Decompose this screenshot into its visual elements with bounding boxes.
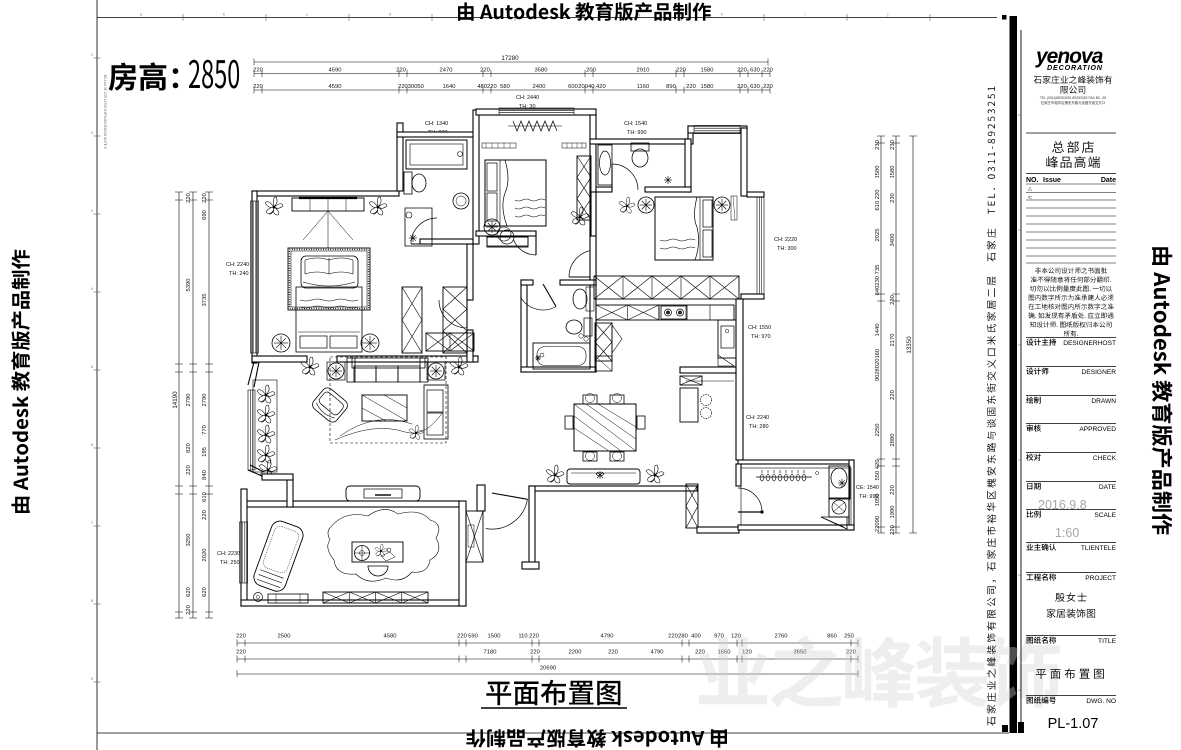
svg-text:PL-1.07: PL-1.07 (1048, 716, 1099, 732)
svg-text:9028020160: 9028020160 (875, 349, 881, 381)
svg-text:220: 220 (763, 68, 773, 74)
svg-text:220: 220 (737, 68, 747, 74)
svg-text:1990: 1990 (890, 506, 896, 519)
svg-text:Issue: Issue (1043, 177, 1061, 184)
svg-text:石家庄市裕华区槐安东路与谈固东街交叉口: 石家庄市裕华区槐安东路与谈固东街交叉口 (1041, 100, 1105, 105)
svg-text:220: 220 (457, 634, 467, 640)
svg-text:840: 840 (202, 470, 208, 480)
svg-text:220: 220 (253, 84, 263, 90)
svg-text:200: 200 (586, 68, 596, 74)
svg-text:3250: 3250 (186, 534, 192, 547)
svg-text:3580: 3580 (535, 68, 548, 74)
svg-text:TH: 970: TH: 970 (751, 334, 771, 340)
svg-text:220: 220 (253, 68, 263, 74)
svg-text:DESIGNER: DESIGNER (1082, 369, 1117, 376)
svg-text:<:: <: (1028, 195, 1032, 201)
svg-text:4590: 4590 (329, 68, 342, 74)
svg-text:2790: 2790 (202, 394, 208, 407)
svg-text:1580: 1580 (701, 68, 714, 74)
svg-text:TH: 250: TH: 250 (220, 560, 240, 566)
svg-text:1580: 1580 (875, 166, 881, 179)
svg-text:220: 220 (890, 525, 896, 535)
svg-text:230: 230 (875, 140, 881, 150)
svg-text:220: 220 (202, 510, 208, 520)
svg-text:2400: 2400 (533, 84, 546, 90)
svg-text:2500: 2500 (278, 634, 291, 640)
svg-text:600: 600 (568, 84, 578, 90)
svg-text:890: 890 (666, 84, 676, 90)
svg-text:230: 230 (890, 140, 896, 150)
svg-text:1440: 1440 (875, 324, 881, 337)
svg-text:TH: 280: TH: 280 (749, 424, 769, 430)
svg-text:195: 195 (202, 447, 208, 457)
svg-text:j: j (887, 12, 889, 17)
svg-text:580: 580 (500, 84, 510, 90)
svg-text:220: 220 (530, 650, 540, 656)
svg-text:630: 630 (750, 84, 760, 90)
svg-text:2760: 2760 (775, 634, 788, 640)
svg-text:220: 220 (236, 634, 246, 640)
svg-text:820: 820 (186, 443, 192, 453)
svg-text:220: 220 (186, 465, 192, 475)
svg-text:DATE: DATE (1099, 484, 1117, 491)
svg-text:2250: 2250 (875, 424, 881, 437)
svg-text:TH: 240: TH: 240 (229, 271, 249, 277)
svg-text:DWG. NO: DWG. NO (1086, 698, 1116, 705)
svg-text:770: 770 (202, 425, 208, 435)
svg-text:TH: 990: TH: 990 (859, 494, 879, 500)
svg-text:400: 400 (691, 634, 701, 640)
svg-text:Date: Date (1101, 177, 1116, 184)
svg-text:TH: 300: TH: 300 (777, 246, 797, 252)
svg-text:4590: 4590 (329, 84, 342, 90)
svg-text:220: 220 (186, 605, 192, 615)
svg-text:3735: 3735 (202, 294, 208, 307)
svg-text:110: 110 (518, 634, 527, 640)
svg-text:2880: 2880 (890, 434, 896, 447)
svg-text:d: d (389, 12, 391, 17)
svg-text:DESIGNERHOST: DESIGNERHOST (1063, 340, 1116, 347)
svg-text:h: h (721, 12, 723, 17)
svg-text:DRAWN: DRAWN (1091, 398, 1116, 405)
svg-text:CH: 1550: CH: 1550 (748, 325, 771, 331)
svg-text:220: 220 (763, 84, 773, 90)
svg-text:i: i (805, 12, 806, 17)
svg-text:220: 220 (236, 650, 246, 656)
svg-text:B2.4 A1 3F-2.05 L2700 GYPSUM C: B2.4 A1 3F-2.05 L2700 GYPSUM CEILING NOT… (103, 75, 107, 150)
svg-text:CHECK: CHECK (1093, 455, 1117, 462)
svg-text:1640: 1640 (443, 84, 456, 90)
svg-text:22090: 22090 (875, 516, 881, 532)
svg-text:20040,420: 20040,420 (578, 84, 605, 90)
svg-text:TEL (0311)89253251 89253252 FA: TEL (0311)89253251 89253252 FAX 89...25 (1040, 96, 1106, 100)
svg-text:610 220: 610 220 (875, 190, 881, 211)
svg-text:1160: 1160 (637, 84, 649, 90)
svg-text:CH: 2240: CH: 2240 (746, 415, 769, 421)
svg-text:840230 735: 840230 735 (875, 265, 881, 296)
svg-text:630: 630 (750, 68, 760, 74)
svg-text:CH: 2440: CH: 2440 (516, 95, 539, 101)
svg-text:CE: 1540: CE: 1540 (856, 485, 879, 491)
svg-text:PROJECT: PROJECT (1085, 575, 1116, 582)
svg-text:280: 280 (678, 634, 688, 640)
svg-text:g: g (638, 12, 640, 17)
svg-text:7180: 7180 (484, 650, 497, 656)
svg-text:220: 220 (890, 485, 896, 495)
svg-text:250: 250 (844, 634, 854, 640)
svg-text:230: 230 (890, 295, 896, 305)
svg-text:DECORATION: DECORATION (1047, 63, 1103, 72)
svg-text:4790: 4790 (601, 634, 614, 640)
svg-text:220: 220 (668, 634, 678, 640)
svg-text:2910: 2910 (637, 68, 650, 74)
svg-text:1:60: 1:60 (1055, 526, 1079, 540)
svg-text:△: △ (1028, 186, 1032, 192)
svg-text:220: 220 (686, 84, 696, 90)
svg-text:3400: 3400 (890, 234, 896, 247)
svg-text:620: 620 (202, 587, 208, 597)
svg-text:CH: 1340: CH: 1340 (425, 121, 448, 127)
svg-text:2016.9.8: 2016.9.8 (1038, 498, 1087, 512)
svg-text:590: 590 (468, 634, 478, 640)
svg-text:5390: 5390 (186, 279, 192, 292)
svg-text:TITLE: TITLE (1098, 638, 1117, 645)
svg-text:APPROVED: APPROVED (1079, 426, 1116, 433)
svg-text:2200: 2200 (569, 650, 582, 656)
svg-text:220: 220 (737, 84, 747, 90)
svg-text:690: 690 (202, 210, 208, 220)
svg-text:220: 220 (396, 68, 406, 74)
svg-text:1580: 1580 (701, 84, 714, 90)
svg-text:2025: 2025 (875, 229, 881, 242)
svg-text:550 420: 550 420 (875, 460, 881, 481)
svg-text:14190: 14190 (172, 391, 179, 409)
svg-text:230: 230 (890, 193, 896, 203)
svg-text:610: 610 (202, 492, 208, 502)
svg-text:TH: 990: TH: 990 (627, 130, 647, 136)
svg-text:860: 860 (827, 634, 837, 640)
svg-text:2020: 2020 (202, 549, 208, 562)
svg-text:220: 220 (480, 68, 490, 74)
svg-text:CH: 2220: CH: 2220 (774, 237, 797, 243)
svg-text:1580: 1580 (890, 166, 896, 179)
svg-text:CH: 1540: CH: 1540 (624, 121, 647, 127)
svg-text:220: 220 (676, 68, 686, 74)
svg-text:17280: 17280 (501, 55, 519, 62)
svg-text:220: 220 (202, 193, 208, 203)
svg-text:220: 220 (186, 193, 192, 203)
svg-text:TLIENTELE: TLIENTELE (1081, 545, 1117, 552)
svg-text:4790: 4790 (651, 650, 664, 656)
svg-text:CH: 2240: CH: 2240 (226, 262, 249, 268)
svg-text:4580: 4580 (384, 634, 397, 640)
svg-text:13350: 13350 (906, 336, 913, 354)
svg-text:2470: 2470 (440, 68, 453, 74)
svg-text:2790: 2790 (186, 394, 192, 407)
svg-text:c: c (306, 12, 308, 17)
svg-text:1500: 1500 (488, 634, 501, 640)
svg-text:NO.: NO. (1026, 177, 1039, 184)
svg-text:220: 220 (890, 390, 896, 400)
svg-text:SCALE: SCALE (1094, 512, 1116, 519)
svg-text:480220: 480220 (477, 84, 496, 90)
svg-text:20690: 20690 (540, 666, 556, 672)
svg-text:2170: 2170 (890, 334, 896, 347)
svg-text:620: 620 (186, 587, 192, 597)
svg-text:220: 220 (529, 634, 539, 640)
svg-text:22030050: 22030050 (398, 84, 424, 90)
svg-text:CH: 2230: CH: 2230 (217, 551, 240, 557)
svg-text:220: 220 (608, 650, 618, 656)
